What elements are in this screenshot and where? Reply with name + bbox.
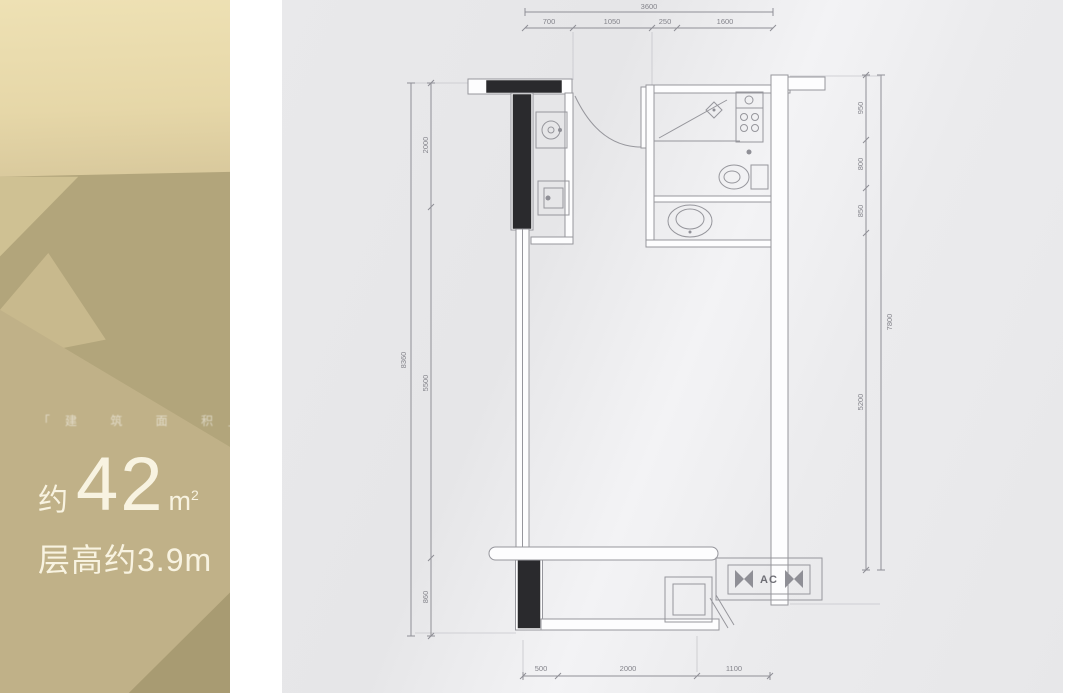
dim-top-seg-1: 700 xyxy=(543,17,556,26)
toilet xyxy=(719,165,768,189)
dim-right-seg-4: 5200 xyxy=(856,394,865,411)
dim-right-seg-2: 800 xyxy=(856,158,865,171)
entry-door xyxy=(575,87,650,148)
dimension-right: 950 800 850 5200 7800 xyxy=(856,72,894,573)
bay-fixture xyxy=(665,577,712,622)
washing-machine xyxy=(536,112,567,148)
dim-bottom-seg-1: 500 xyxy=(535,664,548,673)
dim-top-seg-3: 250 xyxy=(659,17,672,26)
right-wall xyxy=(771,75,825,605)
dim-bottom-seg-3: 1100 xyxy=(726,664,742,673)
washbasin xyxy=(668,205,712,237)
dimension-bottom: 500 2000 1100 xyxy=(520,664,773,680)
dim-right-seg-1: 950 xyxy=(856,102,865,115)
dim-left-total: 8360 xyxy=(399,352,408,369)
dim-right-total: 7800 xyxy=(885,314,894,331)
dimension-top: 3600 700 1050 250 1600 xyxy=(522,2,776,31)
floor-plan-svg: AC 3600 700 1050 250 1600 500 2000 1100 … xyxy=(0,0,1080,693)
dim-left-seg-1: 2000 xyxy=(421,137,430,154)
dim-top-seg-4: 1600 xyxy=(717,17,734,26)
ac-unit: AC xyxy=(716,558,822,600)
dim-top-total: 3600 xyxy=(641,2,658,11)
dim-top-seg-2: 1050 xyxy=(604,17,621,26)
bathroom-cabinet xyxy=(736,92,763,155)
dim-left-seg-2: 5500 xyxy=(421,375,430,392)
left-window-wall xyxy=(516,229,529,549)
shower xyxy=(654,100,740,141)
top-pier xyxy=(468,79,572,230)
entry-cabinet xyxy=(538,181,569,215)
ac-label: AC xyxy=(760,574,778,586)
dim-bottom-seg-2: 2000 xyxy=(620,664,637,673)
dim-left-seg-3: 860 xyxy=(421,591,430,604)
dim-right-seg-3: 850 xyxy=(856,205,865,218)
dimension-left: 8360 2000 5500 860 xyxy=(399,80,435,639)
